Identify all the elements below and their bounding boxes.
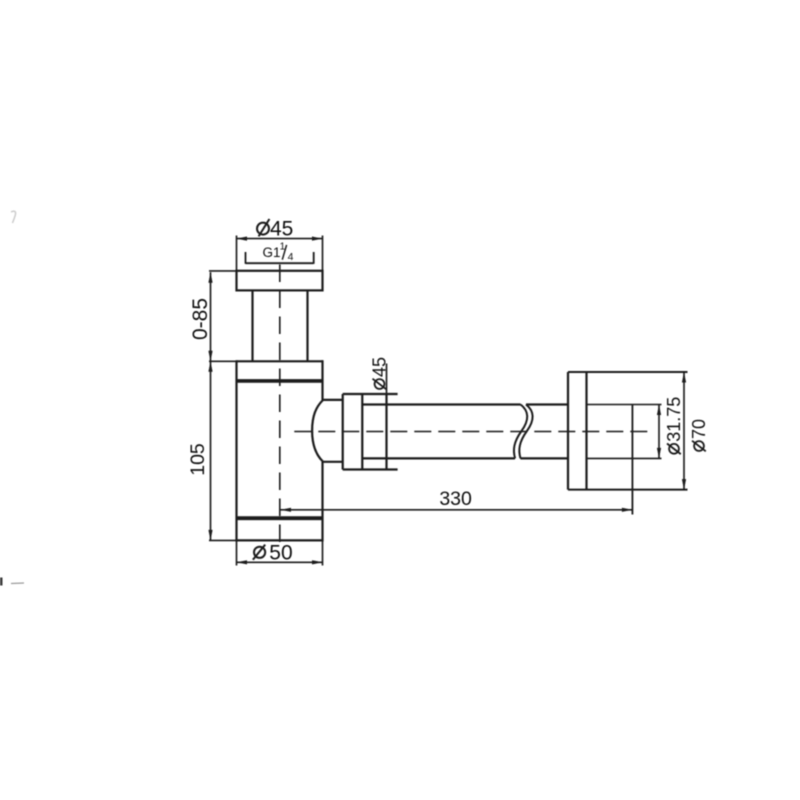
svg-text:45: 45 xyxy=(370,357,390,377)
svg-text:330: 330 xyxy=(439,488,472,510)
svg-text:105: 105 xyxy=(187,443,209,476)
svg-text:70: 70 xyxy=(689,419,709,439)
svg-text:45: 45 xyxy=(270,217,293,240)
svg-text:50: 50 xyxy=(269,542,292,565)
svg-text:4: 4 xyxy=(288,251,294,263)
svg-text:G1: G1 xyxy=(263,245,281,260)
svg-text:31.75: 31.75 xyxy=(664,397,684,442)
svg-text:0-85: 0-85 xyxy=(189,298,212,340)
